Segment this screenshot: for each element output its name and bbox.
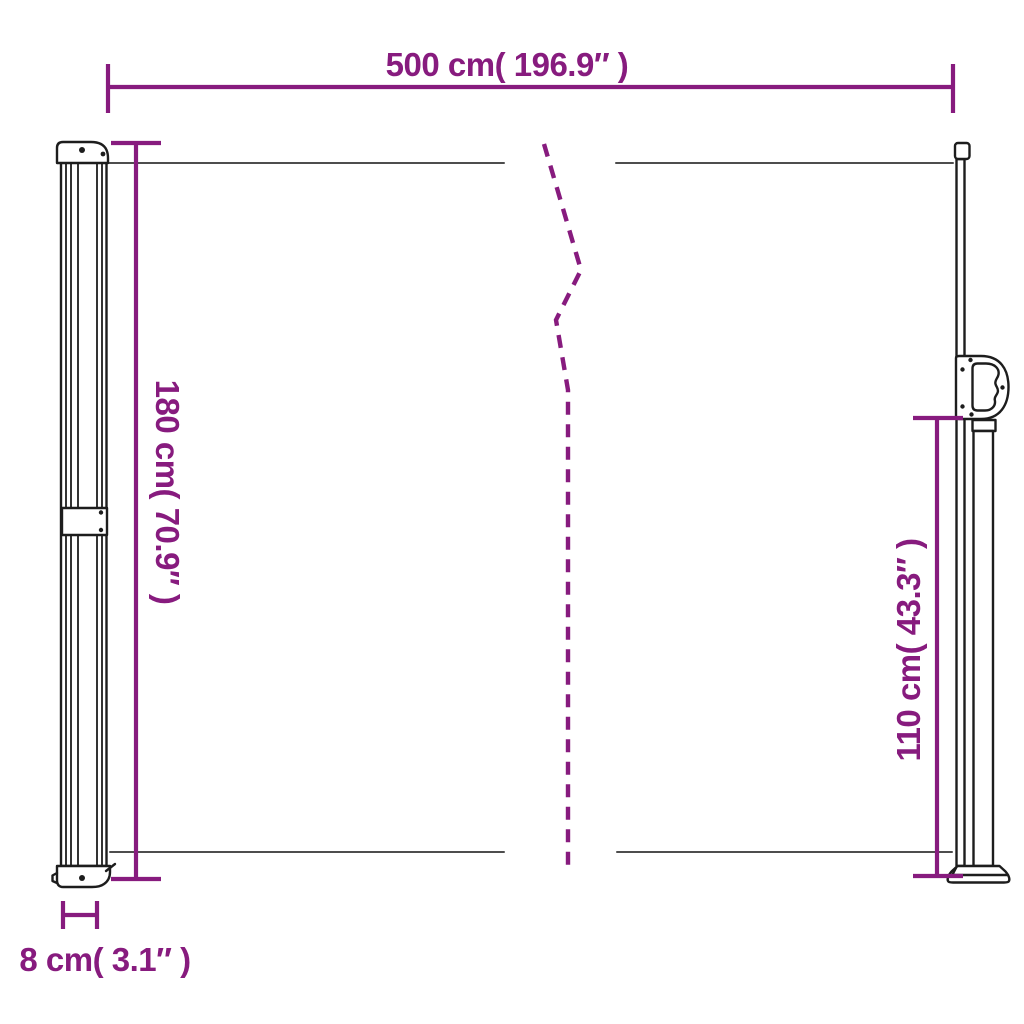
- cassette-post: [53, 142, 116, 887]
- dimension-diagram: 500 cm( 196.9″ ) 180 cm( 70.9″ ) 110 cm(…: [0, 0, 1024, 1024]
- screw-dot: [79, 875, 85, 881]
- handle-grip-cutout: [973, 364, 999, 411]
- width-dimension-label: 500 cm( 196.9″ ): [386, 46, 629, 83]
- handle-collar: [973, 420, 996, 431]
- support-pole: [948, 143, 1010, 883]
- dimension-labels: 500 cm( 196.9″ ) 180 cm( 70.9″ ) 110 cm(…: [19, 46, 927, 978]
- screw-dot: [968, 358, 972, 362]
- screw-dot: [960, 367, 964, 371]
- awning-dimension-drawing: 500 cm( 196.9″ ) 180 cm( 70.9″ ) 110 cm(…: [0, 0, 1024, 1024]
- screw-dot: [79, 147, 85, 153]
- screw-dot: [99, 528, 103, 532]
- screw-dot: [101, 152, 106, 157]
- screw-dot: [969, 412, 973, 416]
- screw-dot: [960, 404, 964, 408]
- fabric-break-line: [544, 144, 581, 874]
- screw-dot: [99, 510, 103, 514]
- screw-dot: [1000, 385, 1004, 389]
- dimension-lines: [63, 64, 963, 929]
- awning-fabric-edges: [108, 163, 953, 852]
- pole-top-cap: [955, 143, 970, 159]
- pole-upper-rod: [957, 159, 965, 866]
- depth-dimension-line: [63, 901, 97, 929]
- pole-height-dimension-label: 110 cm( 43.3″ ): [890, 539, 927, 762]
- height-dimension-label: 180 cm( 70.9″ ): [149, 380, 186, 605]
- depth-dimension-label: 8 cm( 3.1″ ): [19, 941, 190, 978]
- screw-dots: [79, 147, 1005, 881]
- pole-lower-tube: [974, 431, 994, 866]
